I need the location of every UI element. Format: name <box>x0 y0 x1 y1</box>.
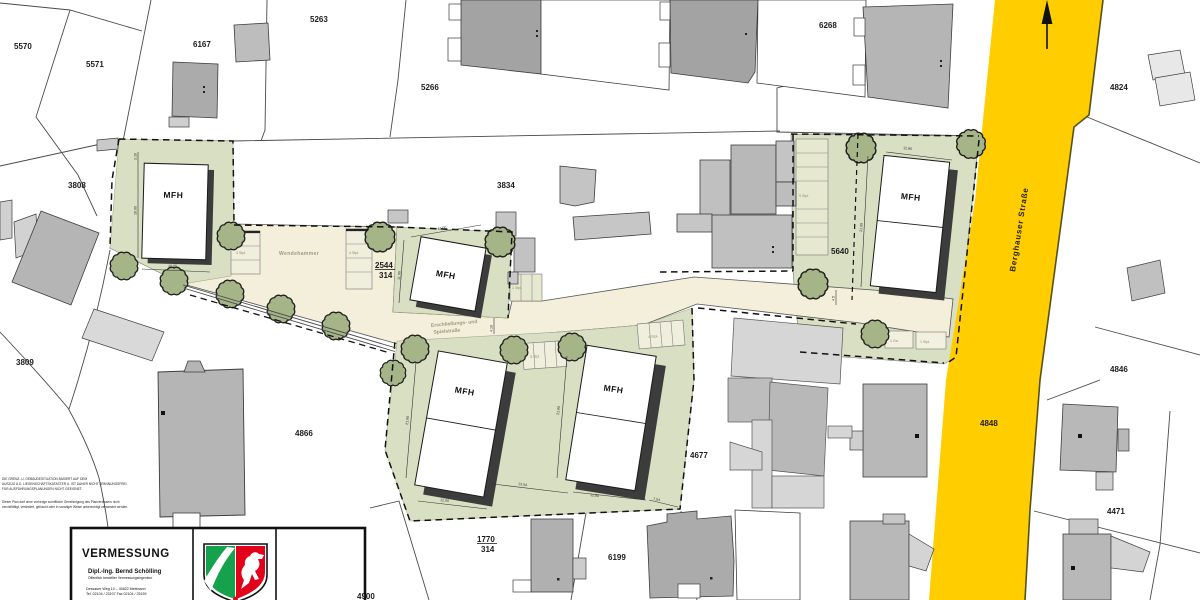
svg-text:4471: 4471 <box>1107 507 1125 516</box>
svg-text:VERMESSUNG: VERMESSUNG <box>82 548 170 560</box>
svg-text:vervielfältigt, verändert, gel: vervielfältigt, verändert, gelöscht oder… <box>2 505 128 509</box>
svg-text:Öffentlich bestellter Vermessu: Öffentlich bestellter Vermessungsingenie… <box>88 576 153 580</box>
svg-text:9 Stpl.: 9 Stpl. <box>799 194 809 198</box>
svg-text:5266: 5266 <box>421 83 439 92</box>
svg-text:3.16: 3.16 <box>134 153 138 160</box>
svg-text:4824: 4824 <box>1110 83 1128 92</box>
svg-text:6268: 6268 <box>819 21 837 30</box>
svg-text:6199: 6199 <box>608 553 626 562</box>
svg-text:Dieser Plan darf ohne vorherig: Dieser Plan darf ohne vorherige schriftl… <box>2 500 120 504</box>
svg-text:2544: 2544 <box>375 261 393 270</box>
svg-text:5263: 5263 <box>310 15 328 24</box>
svg-text:1 Stpl.: 1 Stpl. <box>920 340 930 344</box>
svg-text:314: 314 <box>481 545 495 554</box>
svg-text:21.00: 21.00 <box>859 223 864 232</box>
svg-text:3834: 3834 <box>497 181 515 190</box>
svg-text:4 Stpl.: 4 Stpl. <box>349 251 359 255</box>
svg-text:4846: 4846 <box>1110 365 1128 374</box>
svg-text:4866: 4866 <box>295 429 313 438</box>
svg-text:Tel. 02104 / 23107 Fax 02104: Tel. 02104 / 23107 Fax 02104 / 25159 <box>86 592 147 596</box>
svg-text:5640: 5640 <box>831 247 849 256</box>
svg-text:6167: 6167 <box>193 40 211 49</box>
svg-text:4900: 4900 <box>357 592 375 600</box>
svg-text:3 Stpl.: 3 Stpl. <box>530 354 540 359</box>
svg-text:MFH: MFH <box>163 190 183 201</box>
svg-text:4.5: 4.5 <box>832 296 836 301</box>
svg-text:MFH: MFH <box>900 191 921 203</box>
svg-text:AUSZUG A.D. LIEGENSCHAFTSKATAS: AUSZUG A.D. LIEGENSCHAFTSKATASTER U. IST… <box>2 482 128 486</box>
svg-text:3808: 3808 <box>68 181 86 190</box>
svg-text:4848: 4848 <box>980 419 998 428</box>
svg-text:Dessauer Weg 10 – 40822 Mett: Dessauer Weg 10 – 40822 Mettmann <box>86 587 146 591</box>
svg-text:DIE GRENZ- U. GEBÄUDESITUATION: DIE GRENZ- U. GEBÄUDESITUATION BASIERT A… <box>2 477 88 481</box>
svg-text:3 Stpl.: 3 Stpl. <box>236 251 246 255</box>
svg-text:1770: 1770 <box>477 535 495 544</box>
svg-text:3809: 3809 <box>16 358 34 367</box>
svg-text:4.16: 4.16 <box>490 325 494 332</box>
svg-text:4677: 4677 <box>690 451 708 460</box>
svg-text:16.00: 16.00 <box>134 206 138 215</box>
svg-text:1 Stpl.: 1 Stpl. <box>512 286 522 290</box>
svg-text:1 Ga.: 1 Ga. <box>890 339 899 343</box>
svg-text:Wendehammer: Wendehammer <box>279 251 319 257</box>
svg-text:314: 314 <box>379 271 393 280</box>
svg-text:FÜR AUSFÜHRUNGSPLANUNGEN NICHT: FÜR AUSFÜHRUNGSPLANUNGEN NICHT GEEIGNET. <box>2 487 82 491</box>
svg-text:5570: 5570 <box>14 42 32 51</box>
svg-text:10.05: 10.05 <box>168 264 177 268</box>
svg-text:Dipl.-Ing. Bernd Schölling: Dipl.-Ing. Bernd Schölling <box>88 569 162 575</box>
svg-text:5571: 5571 <box>86 60 104 69</box>
svg-text:11.00: 11.00 <box>397 271 402 280</box>
